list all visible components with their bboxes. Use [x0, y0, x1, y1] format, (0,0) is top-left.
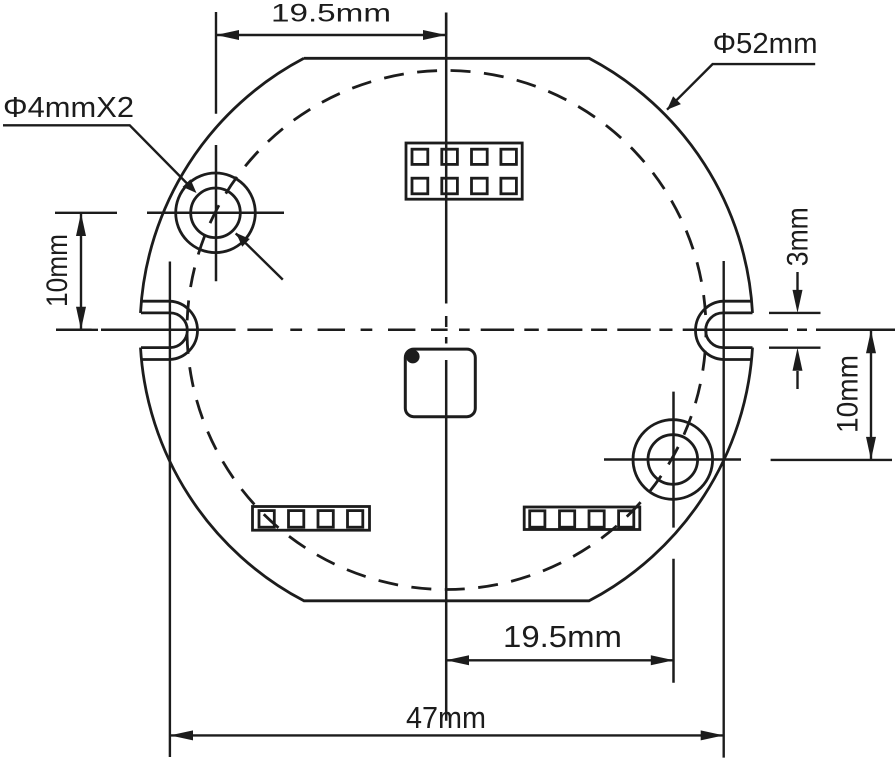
svg-text:19.5mm: 19.5mm — [503, 619, 622, 654]
svg-text:Φ4mmX2: Φ4mmX2 — [3, 92, 134, 124]
svg-text:10mm: 10mm — [832, 355, 865, 433]
svg-text:47mm: 47mm — [406, 700, 486, 735]
svg-text:10mm: 10mm — [41, 234, 74, 307]
svg-text:19.5mm: 19.5mm — [271, 0, 391, 27]
svg-text:3mm: 3mm — [782, 207, 815, 266]
svg-text:Φ52mm: Φ52mm — [713, 28, 818, 60]
